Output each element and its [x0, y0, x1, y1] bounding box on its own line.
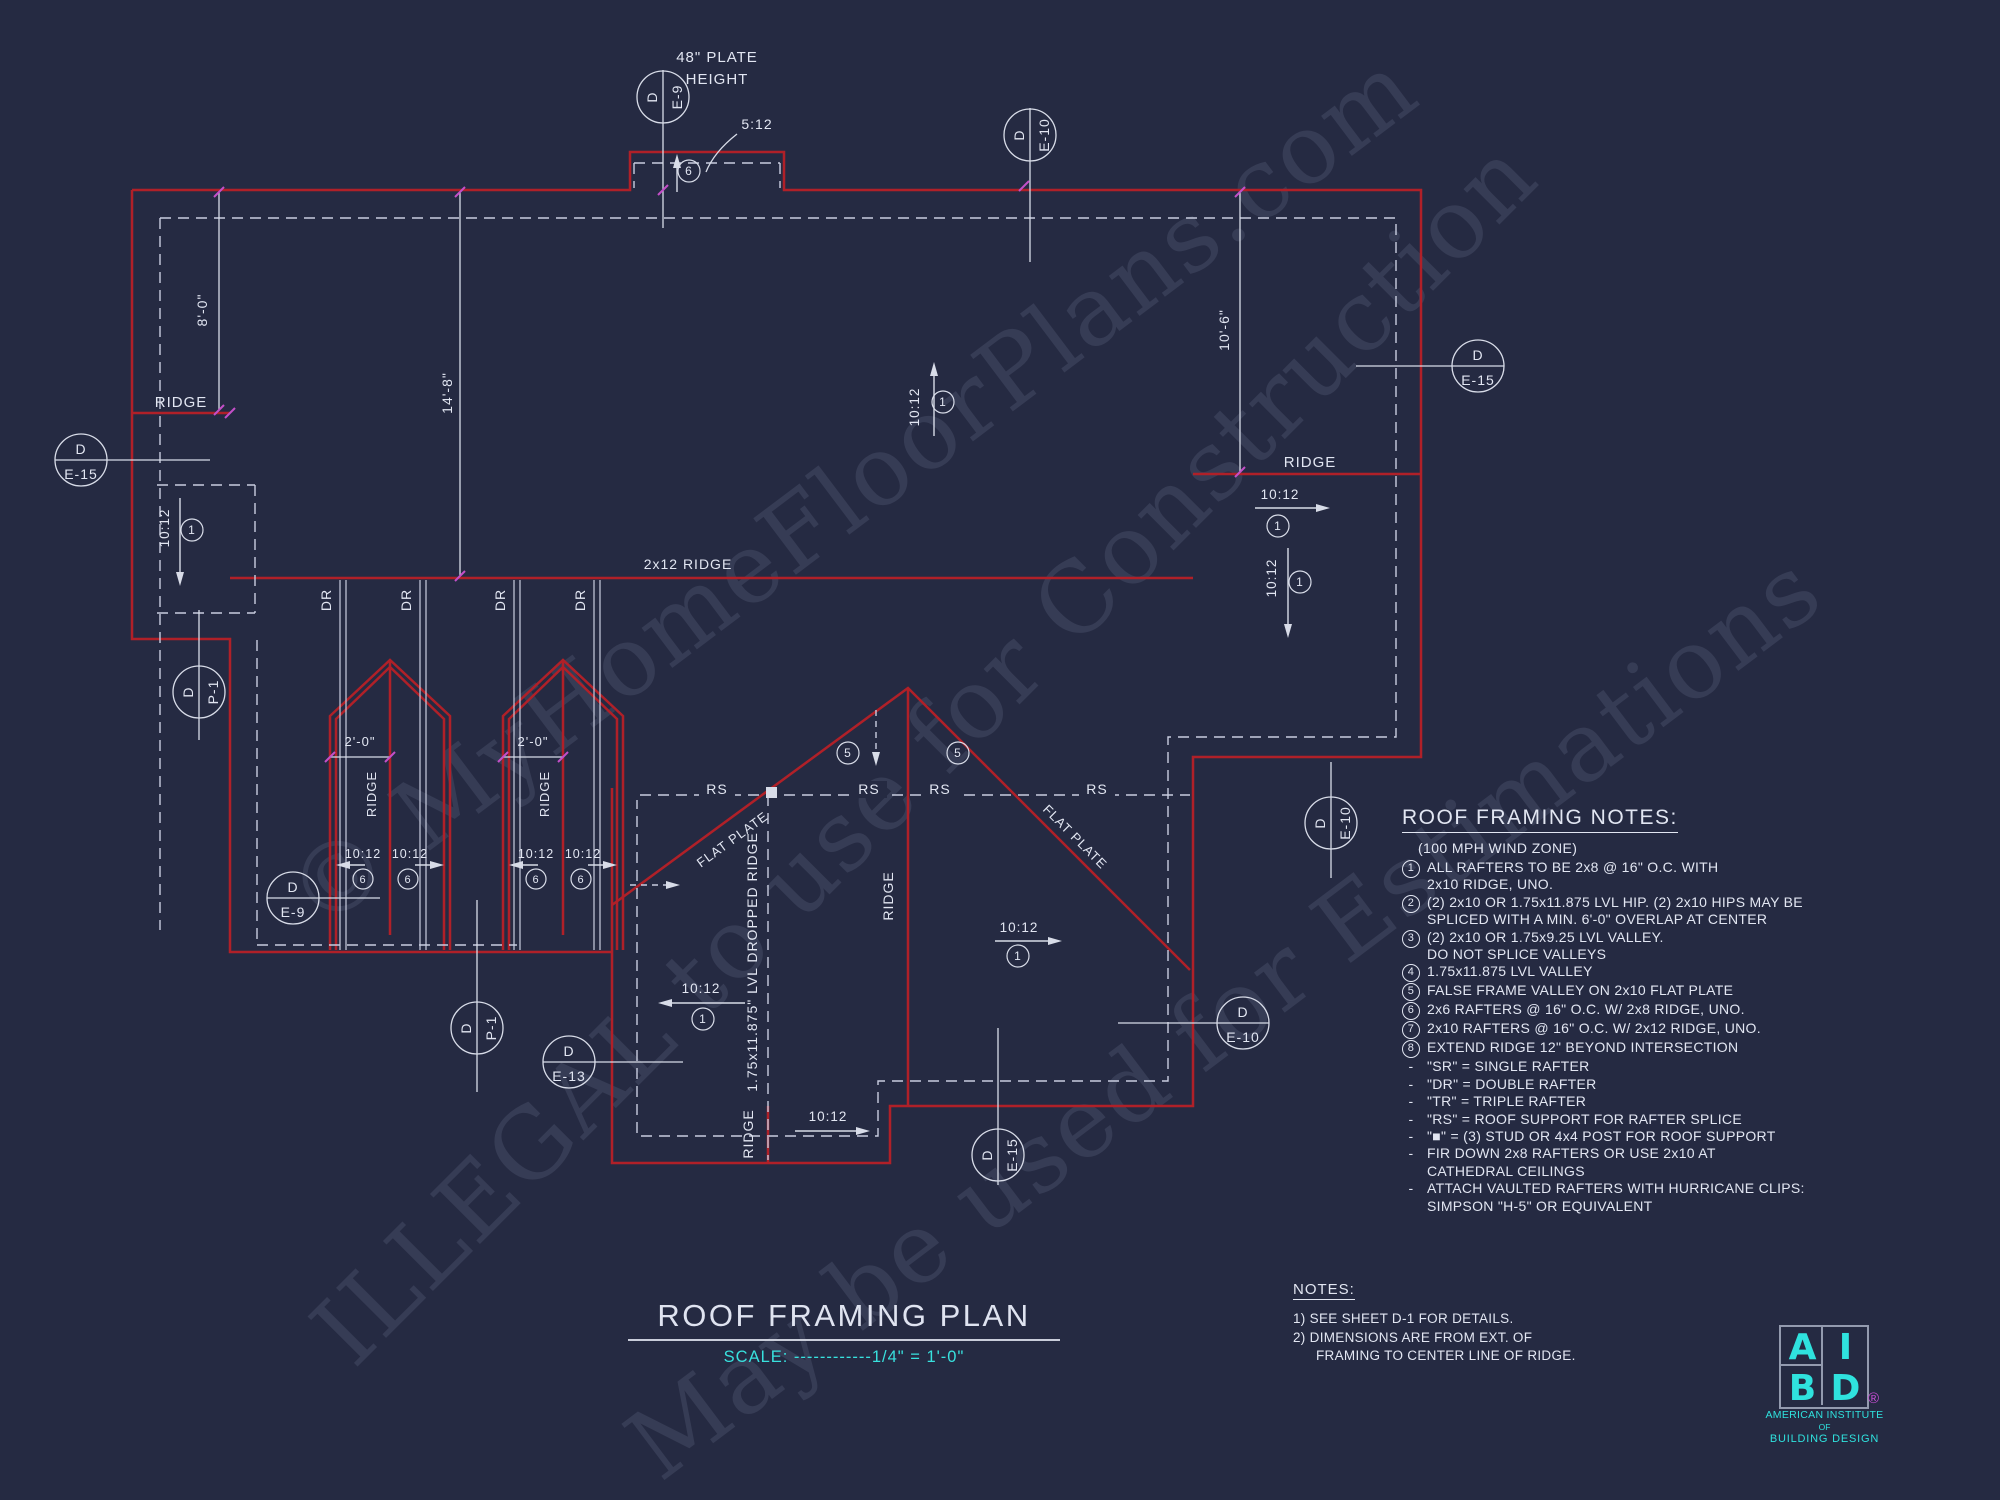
pitch-label: 10:12	[518, 847, 554, 861]
callout-sheet: P-1	[483, 1016, 499, 1041]
pitch-label: 10:12	[392, 847, 428, 861]
callout-sheet: E-9	[669, 85, 685, 110]
logo-text-line1: AMERICAN INSTITUTE	[1752, 1409, 1897, 1421]
aibd-logo-text: AMERICAN INSTITUTE OF BUILDING DESIGN	[1752, 1409, 1897, 1445]
gable-dormer-left	[330, 660, 450, 950]
note-line: SPLICED WITH A MIN. 6'-0" OVERLAP AT CEN…	[1427, 911, 1902, 928]
note-dash: -	[1402, 1180, 1420, 1215]
note-line: "SR" = SINGLE RAFTER	[1427, 1058, 1902, 1075]
ridge-label-gable1: RIDGE	[364, 771, 379, 817]
callout-letter: D	[1472, 347, 1483, 363]
dim-14-8: 14'-8"	[439, 372, 455, 414]
callout-letter: D	[979, 1149, 995, 1160]
note-line: EXTEND RIDGE 12" BEYOND INTERSECTION	[1427, 1039, 1902, 1056]
rs-label: RS	[858, 781, 879, 797]
note-number: 4	[1402, 964, 1420, 982]
callout-sheet: E-15	[1004, 1138, 1020, 1172]
note-line: 2x10 RAFTERS @ 16" O.C. W/ 2x12 RIDGE, U…	[1427, 1020, 1902, 1037]
pitch-label: 10:12	[565, 847, 601, 861]
framing-note-item: -"RS" = ROOF SUPPORT FOR RAFTER SPLICE	[1402, 1111, 1902, 1128]
aibd-logo: A I B D	[1779, 1325, 1869, 1409]
ridge-label-left-wing: RIDGE	[155, 394, 208, 411]
callout-sheet: P-1	[205, 680, 221, 705]
framing-note-item: -"DR" = DOUBLE RAFTER	[1402, 1076, 1902, 1093]
sheet-title: ROOF FRAMING PLAN	[628, 1298, 1060, 1341]
framing-note-item: 5FALSE FRAME VALLEY ON 2x10 FLAT PLATE	[1402, 982, 1902, 1001]
logo-letter-a: A	[1781, 1327, 1824, 1368]
logo-text-line3: BUILDING DESIGN	[1752, 1433, 1897, 1445]
note-marker-6: 6	[577, 874, 584, 886]
note-line: ATTACH VAULTED RAFTERS WITH HURRICANE CL…	[1427, 1180, 1902, 1197]
note-number: 1	[1402, 860, 1420, 878]
framing-note-item: -"TR" = TRIPLE RAFTER	[1402, 1093, 1902, 1110]
note-line: CATHEDRAL CEILINGS	[1427, 1163, 1902, 1180]
plate-dashed-lines	[157, 163, 1396, 1160]
note-line: 1.75x11.875 LVL VALLEY	[1427, 963, 1902, 980]
note-marker-1: 1	[1296, 575, 1304, 589]
note-marker-1: 1	[939, 395, 947, 409]
dr-label: DR	[572, 589, 588, 611]
framing-note-item: -"SR" = SINGLE RAFTER	[1402, 1058, 1902, 1075]
framing-note-item: 8EXTEND RIDGE 12" BEYOND INTERSECTION	[1402, 1039, 1902, 1058]
note-line: "DR" = DOUBLE RAFTER	[1427, 1076, 1902, 1093]
pitch-label: 10:12	[682, 981, 721, 996]
note-number: 5	[1402, 983, 1420, 1001]
ridge-label-bottom-wing: RIDGE	[740, 1109, 756, 1158]
callout-letter: D	[1237, 1004, 1248, 1020]
callout-sheet: E-9	[281, 904, 306, 920]
rs-label: RS	[706, 781, 727, 797]
valley-lines	[612, 688, 1190, 1106]
note-marker-6: 6	[359, 874, 366, 886]
note-marker-6: 6	[404, 874, 411, 886]
callout-letter: D	[287, 879, 298, 895]
framing-note-item: 1ALL RAFTERS TO BE 2x8 @ 16" O.C. WITH2x…	[1402, 859, 1902, 894]
general-note-2-cont: FRAMING TO CENTER LINE OF RIDGE.	[1293, 1347, 1623, 1366]
roof-support-post-symbol	[766, 787, 777, 798]
note-dash: -	[1402, 1145, 1420, 1180]
pitch-label: 10:12	[345, 847, 381, 861]
pitch-label: 10:12	[1264, 559, 1279, 598]
roof-outline-red	[132, 152, 1421, 1163]
callout-letter: D	[180, 686, 196, 697]
note-line: FALSE FRAME VALLEY ON 2x10 FLAT PLATE	[1427, 982, 1902, 999]
pitch-5-label: 5:12	[741, 116, 772, 132]
logo-divider-vertical	[1821, 1327, 1823, 1405]
logo-letter-d: D	[1824, 1368, 1867, 1409]
note-marker-5: 5	[954, 746, 962, 760]
note-marker-1: 1	[1274, 519, 1282, 533]
note-line: SIMPSON "H-5" OR EQUIVALENT	[1427, 1198, 1902, 1215]
note-marker-6: 6	[685, 164, 693, 178]
note-dash: -	[1402, 1058, 1420, 1075]
note-number: 3	[1402, 930, 1420, 948]
callout-letter: D	[1011, 129, 1027, 140]
general-notes: NOTES: 1) SEE SHEET D-1 FOR DETAILS. 2) …	[1293, 1281, 1623, 1366]
note-line: DO NOT SPLICE VALLEYS	[1427, 946, 1902, 963]
callout-letter: D	[75, 441, 86, 457]
framing-note-item: 3(2) 2x10 OR 1.75x9.25 LVL VALLEY.DO NOT…	[1402, 929, 1902, 964]
callout-letter: D	[644, 91, 660, 102]
callout-sheet: E-13	[552, 1068, 586, 1084]
framing-note-item: 41.75x11.875 LVL VALLEY	[1402, 963, 1902, 982]
note-line: (2) 2x10 OR 1.75x9.25 LVL VALLEY.	[1427, 929, 1902, 946]
dim-8-0: 8'-0"	[194, 294, 210, 327]
dim-2-0: 2'-0"	[345, 734, 376, 749]
sheet-scale: SCALE: ------------1/4" = 1'-0"	[628, 1348, 1060, 1367]
title-block: ROOF FRAMING PLAN SCALE: ------------1/4…	[628, 1298, 1060, 1367]
roof-framing-notes: ROOF FRAMING NOTES: (100 MPH WIND ZONE) …	[1402, 806, 1902, 1215]
ridge-2x12-label: 2x12 RIDGE	[644, 556, 733, 572]
note-marker-1: 1	[188, 523, 196, 537]
logo-registered-mark: ®	[1868, 1390, 1879, 1407]
callout-sheet: E-10	[1036, 118, 1052, 152]
framing-note-item: 62x6 RAFTERS @ 16" O.C. W/ 2x8 RIDGE, UN…	[1402, 1001, 1902, 1020]
dim-2-0: 2'-0"	[518, 734, 549, 749]
framing-note-item: 2(2) 2x10 OR 1.75x11.875 LVL HIP. (2) 2x…	[1402, 894, 1902, 929]
note-number: 6	[1402, 1002, 1420, 1020]
ridge-label-right-wing: RIDGE	[1284, 454, 1337, 471]
note-dash: -	[1402, 1111, 1420, 1128]
plan-labels: RIDGE 8'-0" 14'-8" 10'-6" 2x12 RIDGE RID…	[155, 49, 1337, 1159]
note-line: (2) 2x10 OR 1.75x11.875 LVL HIP. (2) 2x1…	[1427, 894, 1902, 911]
dimension-lines	[219, 192, 1240, 757]
ridge-label-gable2: RIDGE	[537, 771, 552, 817]
general-note-1: 1) SEE SHEET D-1 FOR DETAILS.	[1293, 1310, 1623, 1329]
note-line: "■" = (3) STUD OR 4x4 POST FOR ROOF SUPP…	[1427, 1128, 1902, 1145]
flat-plate-label-right: FLAT PLATE	[1040, 802, 1110, 872]
logo-text-line2: OF	[1752, 1422, 1897, 1432]
callout-sheet: E-10	[1337, 806, 1353, 840]
dormer-plate-dashed	[634, 163, 780, 188]
plate-height-label-1: 48" PLATE	[676, 49, 758, 66]
pitch-label: 10:12	[157, 509, 172, 548]
pitch-label: 10:12	[1000, 920, 1039, 935]
rs-label: RS	[1086, 781, 1107, 797]
framing-note-item: 72x10 RAFTERS @ 16" O.C. W/ 2x12 RIDGE, …	[1402, 1020, 1902, 1039]
framing-notes-subtitle: (100 MPH WIND ZONE)	[1418, 840, 1902, 856]
note-marker-1: 1	[699, 1012, 707, 1026]
logo-divider-horizontal	[1781, 1364, 1823, 1366]
note-number: 7	[1402, 1021, 1420, 1039]
note-number: 2	[1402, 895, 1420, 913]
dr-label: DR	[398, 589, 414, 611]
note-marker-1: 1	[1014, 949, 1022, 963]
note-line: 2x6 RAFTERS @ 16" O.C. W/ 2x8 RIDGE, UNO…	[1427, 1001, 1902, 1018]
note-dash: -	[1402, 1076, 1420, 1093]
callout-sheet: E-15	[1461, 372, 1495, 388]
framing-note-item: -FIR DOWN 2x8 RAFTERS OR USE 2x10 ATCATH…	[1402, 1145, 1902, 1180]
framing-note-item: -"■" = (3) STUD OR 4x4 POST FOR ROOF SUP…	[1402, 1128, 1902, 1145]
logo-letter-i: I	[1824, 1327, 1867, 1368]
logo-letter-b: B	[1781, 1368, 1824, 1409]
dimension-ticks	[214, 181, 1245, 762]
callout-sheet: E-15	[64, 466, 98, 482]
framing-notes-title: ROOF FRAMING NOTES:	[1402, 806, 1678, 833]
note-dash: -	[1402, 1128, 1420, 1145]
note-number: 8	[1402, 1040, 1420, 1058]
general-note-2: 2) DIMENSIONS ARE FROM EXT. OF	[1293, 1329, 1623, 1348]
dropped-ridge-label: 1.75x11.875" LVL DROPPED RIDGE	[744, 832, 760, 1092]
callout-sheet: E-10	[1226, 1029, 1260, 1045]
general-notes-title: NOTES:	[1293, 1281, 1355, 1300]
note-marker-6: 6	[532, 874, 539, 886]
callout-letter: D	[458, 1022, 474, 1033]
ridge-label-center: RIDGE	[880, 871, 896, 920]
drawing-sheet: © MyHomeFloorPlans.com ILLEGAL to use fo…	[0, 0, 2000, 1500]
framing-note-item: -ATTACH VAULTED RAFTERS WITH HURRICANE C…	[1402, 1180, 1902, 1215]
note-dash: -	[1402, 1093, 1420, 1110]
note-line: FIR DOWN 2x8 RAFTERS OR USE 2x10 AT	[1427, 1145, 1902, 1162]
plate-height-label-2: HEIGHT	[686, 71, 749, 88]
roof-framing-plan-drawing: D E-9 D E-10 D E-15 D E-15 D P-1	[0, 0, 2000, 1500]
dr-label: DR	[318, 589, 334, 611]
note-line: ALL RAFTERS TO BE 2x8 @ 16" O.C. WITH	[1427, 859, 1902, 876]
pitch-label: 10:12	[907, 388, 922, 427]
dr-label: DR	[492, 589, 508, 611]
note-line: "RS" = ROOF SUPPORT FOR RAFTER SPLICE	[1427, 1111, 1902, 1128]
gable-dormer-right	[503, 660, 623, 950]
dim-10-6: 10'-6"	[1216, 309, 1232, 351]
pitch-label: 10:12	[1261, 487, 1300, 502]
pitch-label: 10:12	[809, 1109, 848, 1124]
callout-letter: D	[563, 1043, 574, 1059]
note-line: "TR" = TRIPLE RAFTER	[1427, 1093, 1902, 1110]
rs-label: RS	[929, 781, 950, 797]
double-rafter-lines	[340, 580, 600, 950]
callout-letter: D	[1312, 817, 1328, 828]
note-line: 2x10 RIDGE, UNO.	[1427, 876, 1902, 893]
note-marker-5: 5	[844, 746, 852, 760]
